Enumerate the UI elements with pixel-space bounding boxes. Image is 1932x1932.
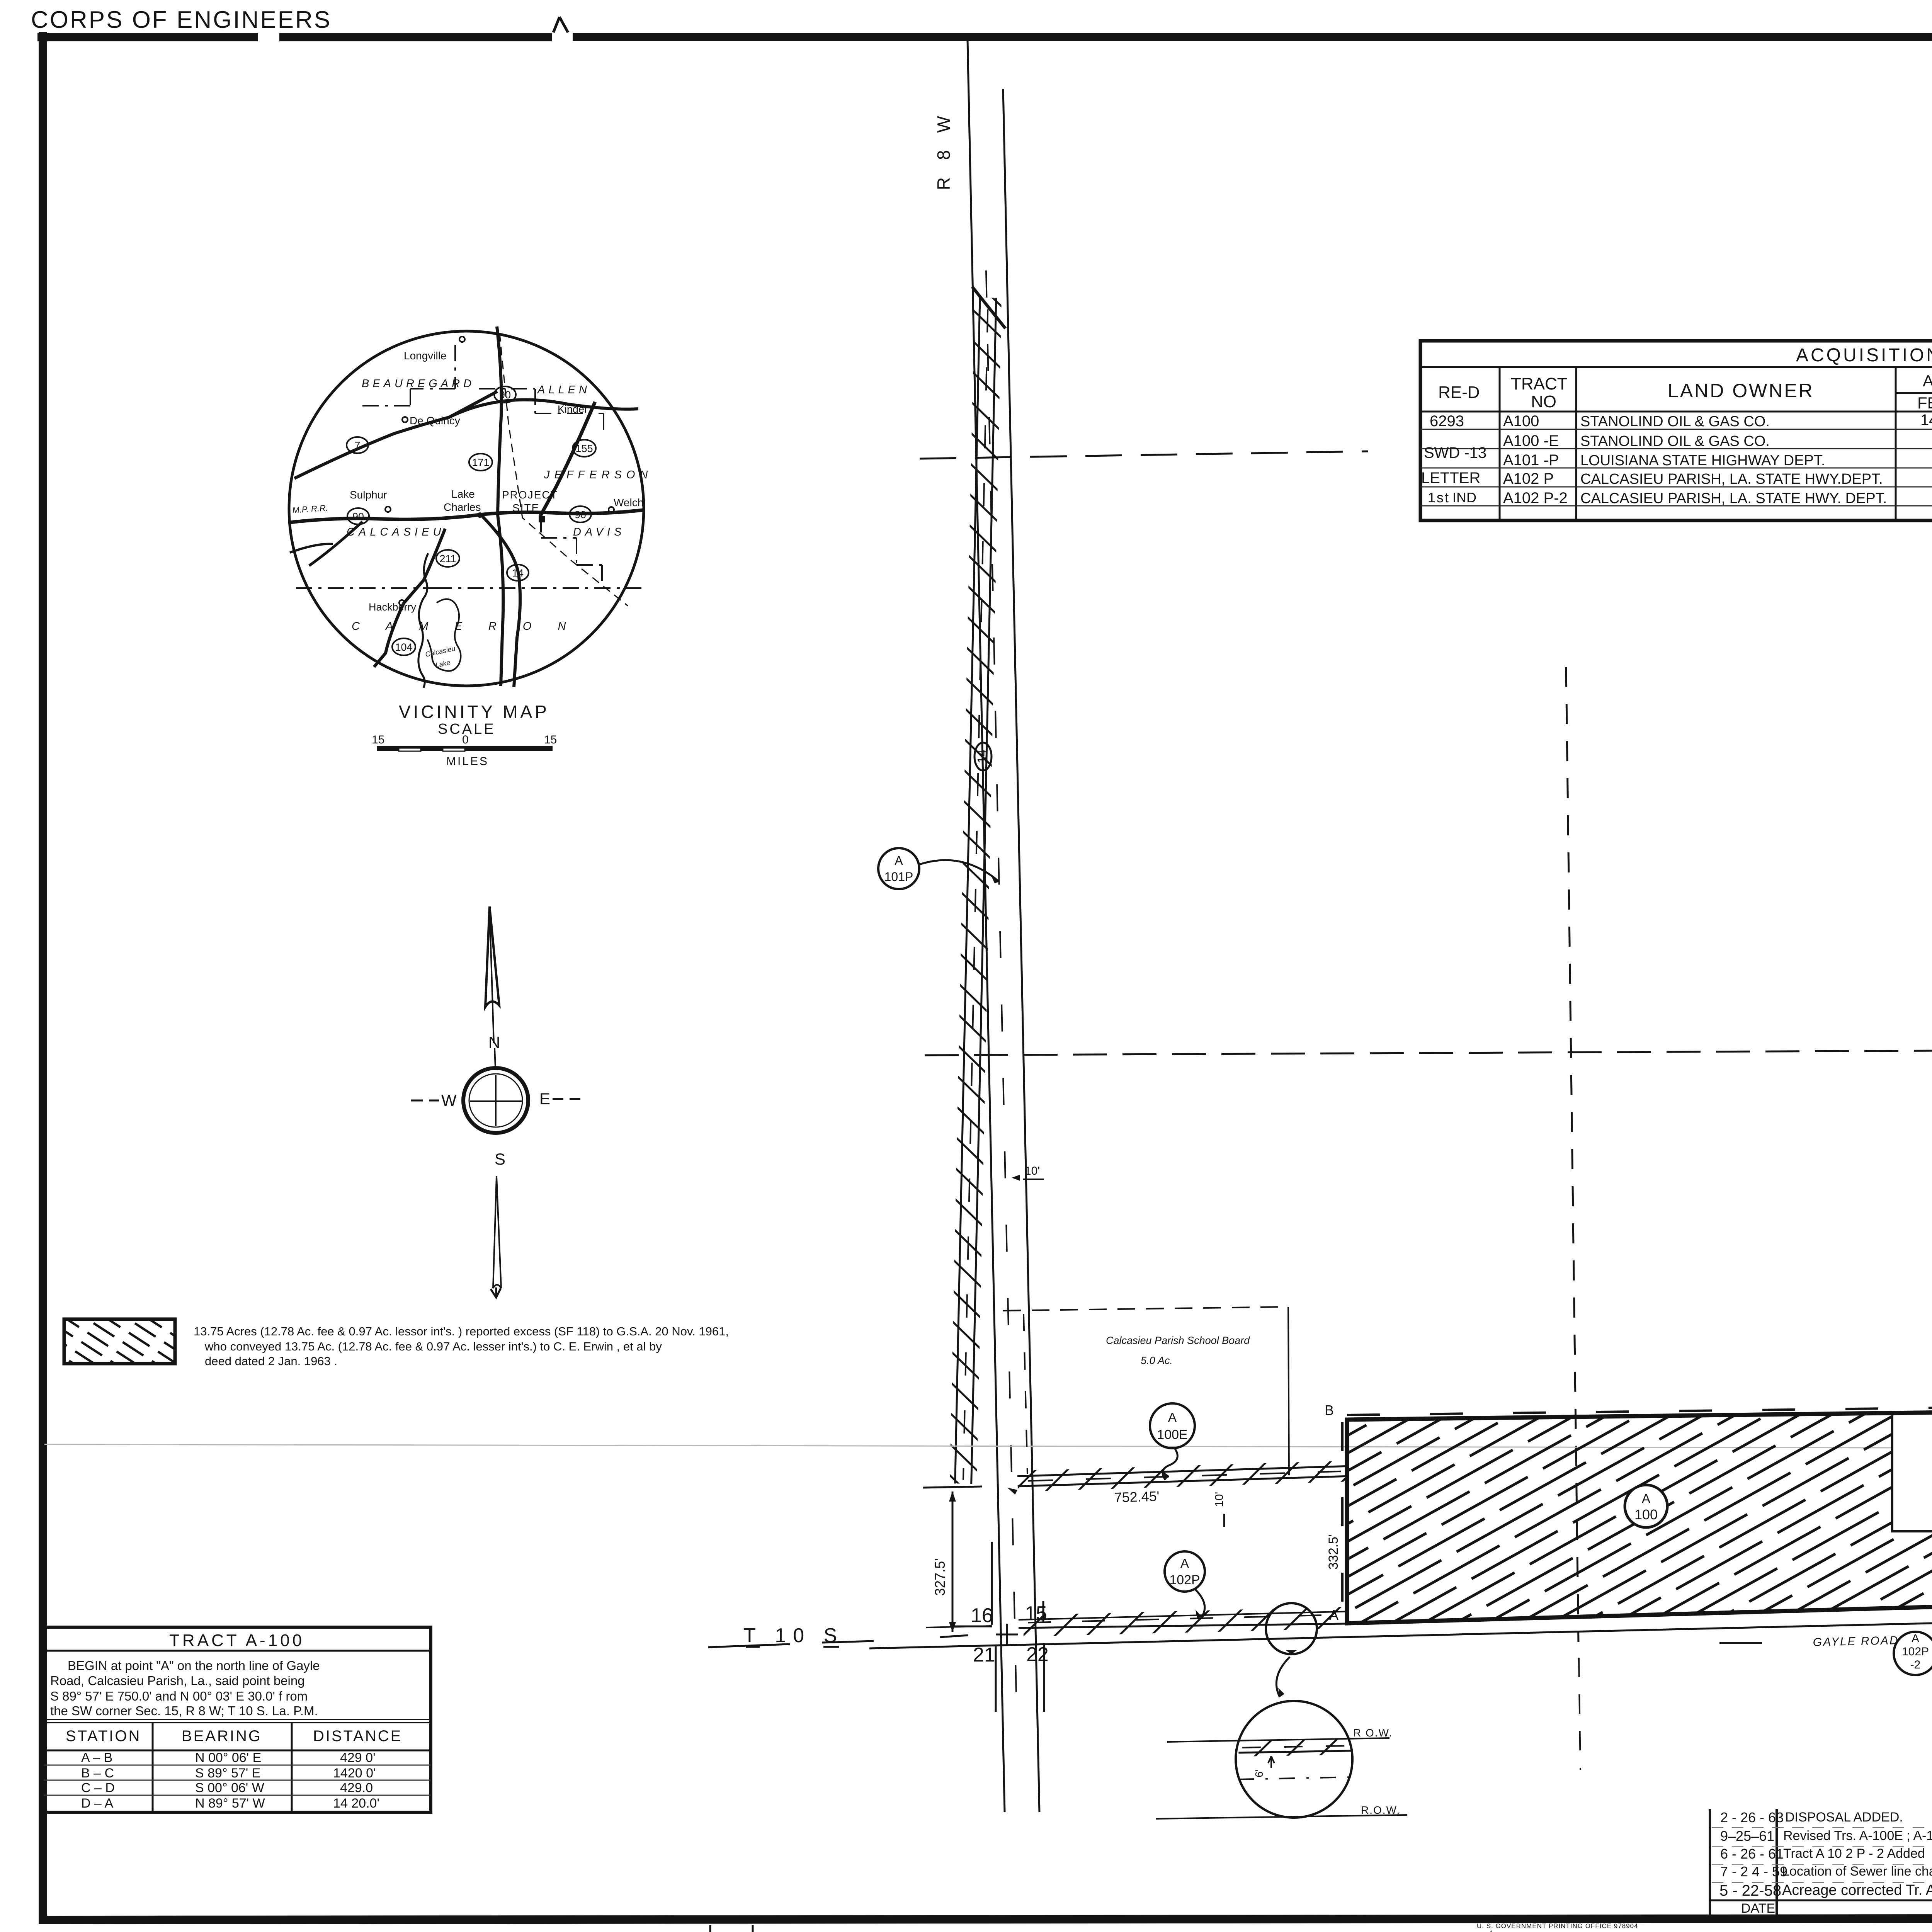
svg-text:5.0 Ac.: 5.0 Ac. (1141, 1355, 1173, 1366)
svg-text:B – C: B – C (81, 1766, 114, 1781)
svg-text:C A M E R O N: C A M E R O N (352, 620, 577, 633)
svg-text:10': 10' (1213, 1492, 1226, 1507)
svg-text:JEFFERSON: JEFFERSON (544, 469, 652, 481)
svg-text:Incl 5: Incl 5 (1430, 1930, 1483, 1932)
svg-text:STANOLIND OIL & GAS CO.: STANOLIND OIL & GAS CO. (1580, 413, 1770, 430)
svg-text:7: 7 (354, 440, 360, 451)
svg-text:6': 6' (1253, 1769, 1265, 1777)
svg-text:Revised Trs. A-100E ; A-101P: Revised Trs. A-100E ; A-101P & A-102P to… (1783, 1828, 1932, 1843)
svg-text:N: N (488, 1033, 500, 1051)
svg-text:22: 22 (1026, 1643, 1049, 1666)
svg-text:who conveyed 13.75 Ac. (12.7: who conveyed 13.75 Ac. (12.78 Ac. fee & … (204, 1340, 662, 1353)
svg-text:A: A (1329, 1607, 1338, 1623)
svg-text:VICINITY MAP: VICINITY MAP (399, 702, 549, 722)
svg-text:429.0: 429.0 (340, 1781, 373, 1795)
svg-text:S 89° 57' E 750.0' and N: S 89° 57' E 750.0' and N 00° 03' E 30.0'… (50, 1689, 308, 1703)
svg-text:2 - 26 - 63: 2 - 26 - 63 (1720, 1810, 1784, 1825)
svg-text:ACQUISITION: ACQUISITION (1796, 345, 1932, 366)
svg-text:De Quincy: De Quincy (410, 415, 460, 427)
svg-text:CALCASIEU PARISH, LA. STATE HW: CALCASIEU PARISH, LA. STATE HWY.DEPT. (1580, 471, 1883, 487)
svg-text:ACREAGE: ACREAGE (1923, 372, 1932, 390)
svg-text:CALCASIEU: CALCASIEU (347, 526, 445, 538)
svg-text:100E: 100E (1157, 1427, 1187, 1442)
svg-text:Calcasieu Parish School Board: Calcasieu Parish School Board (1106, 1335, 1250, 1346)
svg-text:B: B (1325, 1402, 1334, 1418)
svg-text:Longville: Longville (404, 350, 447, 362)
svg-text:21: 21 (973, 1644, 995, 1666)
svg-text:BEAUREGARD: BEAUREGARD (362, 378, 475, 390)
svg-text:102P: 102P (1902, 1645, 1929, 1658)
svg-text:D – A: D – A (81, 1796, 113, 1811)
svg-text:Acreage corrected Tr. A - 1: Acreage corrected Tr. A - 102 - P (1782, 1882, 1932, 1898)
svg-text:A100 -E: A100 -E (1503, 432, 1559, 449)
svg-text:SWD -13: SWD -13 (1424, 444, 1486, 461)
svg-text:Location of Sewer line cha: Location of Sewer line changed (1782, 1864, 1932, 1879)
svg-text:U. S. GOVERNMENT PRINTING: U. S. GOVERNMENT PRINTING OFFICE 978904 (1477, 1922, 1638, 1930)
svg-text:Sulphur: Sulphur (350, 489, 387, 501)
svg-text:NO: NO (1531, 392, 1556, 411)
svg-text:GAYLE ROAD: GAYLE ROAD (1813, 1634, 1899, 1649)
svg-text:Tract A 10 2 P - 2 Added: Tract A 10 2 P - 2 Added (1783, 1846, 1925, 1861)
svg-text:BEARING: BEARING (182, 1728, 262, 1745)
svg-text:S 00° 06' W: S 00° 06' W (195, 1781, 264, 1795)
svg-text:7 - 2 4 - 59: 7 - 2 4 - 59 (1720, 1864, 1787, 1879)
svg-text:A102 P: A102 P (1503, 470, 1554, 487)
svg-text:10': 10' (1025, 1165, 1040, 1177)
svg-text:LAND OWNER: LAND OWNER (1668, 380, 1814, 401)
svg-text:171: 171 (472, 457, 489, 468)
svg-text:A102 P-2: A102 P-2 (1503, 490, 1568, 507)
svg-text:9–25–61: 9–25–61 (1720, 1828, 1774, 1844)
svg-text:A101 -P: A101 -P (1503, 452, 1559, 469)
svg-text:Charles: Charles (444, 501, 481, 513)
svg-text:155: 155 (575, 443, 593, 454)
svg-text:1420 0': 1420 0' (333, 1766, 376, 1781)
svg-text:R O.W.: R O.W. (1353, 1727, 1393, 1739)
svg-text:16: 16 (971, 1604, 993, 1627)
svg-text:TRACT: TRACT (1511, 374, 1568, 393)
svg-text:T 10 S: T 10 S (743, 1624, 844, 1647)
svg-text:FEE: FEE (1917, 394, 1932, 412)
svg-text:R.O.W.: R.O.W. (1361, 1804, 1400, 1816)
svg-text:A: A (1912, 1632, 1919, 1645)
svg-text:MILES: MILES (446, 755, 489, 768)
svg-text:Hackberry: Hackberry (369, 601, 417, 613)
svg-text:5 - 22-58: 5 - 22-58 (1719, 1882, 1781, 1899)
svg-text:752.45': 752.45' (1114, 1488, 1160, 1505)
svg-text:211: 211 (439, 553, 456, 565)
svg-text:6293: 6293 (1430, 413, 1464, 430)
svg-text:CALCASIEU PARISH, LA. STATE H: CALCASIEU PARISH, LA. STATE HWY. DEPT. (1580, 490, 1887, 507)
svg-text:15: 15 (544, 733, 557, 746)
svg-text:STANOLIND OIL & GAS CO.: STANOLIND OIL & GAS CO. (1580, 433, 1770, 449)
svg-text:R 8 W: R 8 W (934, 110, 954, 190)
svg-text:A: A (895, 854, 903, 867)
svg-text:90: 90 (352, 511, 364, 522)
svg-text:Road, Calcasieu Parish, La.: Road, Calcasieu Parish, La., said point … (50, 1673, 305, 1688)
svg-text:N 00° 06' E: N 00° 06' E (195, 1750, 261, 1765)
svg-text:13.75 Acres (12.78 Ac. fee &: 13.75 Acres (12.78 Ac. fee & 0.97 Ac. le… (194, 1325, 729, 1338)
svg-text:Welch: Welch (614, 497, 643, 509)
svg-text:DAVIS: DAVIS (573, 526, 625, 538)
svg-text:100: 100 (1634, 1507, 1658, 1522)
svg-text:ALLEN: ALLEN (537, 384, 590, 396)
svg-text:Lake: Lake (451, 488, 475, 500)
svg-text:DISTANCE: DISTANCE (313, 1728, 402, 1745)
svg-text:332.5': 332.5' (1326, 1534, 1341, 1570)
svg-text:102P: 102P (1169, 1573, 1200, 1587)
svg-text:BEGIN at point "A" on the: BEGIN at point "A" on the north line of … (68, 1658, 320, 1673)
svg-text:101P: 101P (884, 870, 913, 884)
svg-text:327.5': 327.5' (932, 1558, 948, 1596)
svg-text:W: W (441, 1091, 457, 1109)
svg-text:DATE: DATE (1741, 1901, 1775, 1916)
svg-text:LETTER: LETTER (1421, 469, 1480, 486)
svg-text:SITE: SITE (512, 502, 539, 514)
svg-text:LOUISIANA STATE HIGHWAY DEPT.: LOUISIANA STATE HIGHWAY DEPT. (1580, 452, 1825, 469)
svg-text:S: S (495, 1150, 505, 1168)
svg-text:the SW corner Sec. 15, R 8 W: the SW corner Sec. 15, R 8 W; T 10 S. La… (50, 1704, 318, 1718)
svg-text:N 89° 57' W: N 89° 57' W (195, 1796, 265, 1811)
svg-text:-2: -2 (1910, 1658, 1921, 1671)
svg-text:90: 90 (575, 509, 586, 520)
svg-text:A: A (1180, 1556, 1189, 1571)
svg-text:RE-D: RE-D (1438, 383, 1480, 402)
svg-text:A: A (1168, 1410, 1177, 1425)
svg-text:429 0': 429 0' (340, 1750, 376, 1765)
svg-text:TRACT A-100: TRACT A-100 (169, 1631, 304, 1650)
svg-text:DISPOSAL ADDED.: DISPOSAL ADDED. (1785, 1810, 1903, 1825)
svg-text:Kinder: Kinder (558, 403, 588, 415)
svg-text:PROJECT: PROJECT (502, 489, 558, 501)
svg-text:A – B: A – B (81, 1750, 112, 1765)
svg-text:104: 104 (395, 641, 412, 653)
svg-text:A: A (1642, 1492, 1651, 1506)
svg-text:1 s t IND: 1 s t IND (1428, 490, 1476, 505)
svg-text:14 20.0': 14 20.0' (333, 1796, 379, 1811)
svg-text:C – D: C – D (81, 1781, 115, 1795)
svg-text:90: 90 (499, 389, 511, 401)
svg-text:STATION: STATION (66, 1728, 141, 1745)
svg-text:0: 0 (462, 733, 469, 746)
svg-text:14 .00: 14 .00 (1920, 412, 1932, 429)
svg-text:S 89° 57' E: S 89° 57' E (195, 1766, 260, 1781)
svg-text:A100: A100 (1503, 413, 1539, 430)
svg-text:CORPS OF ENGINEERS: CORPS OF ENGINEERS (31, 7, 332, 33)
svg-text:14: 14 (512, 567, 524, 579)
svg-text:deed dated 2 Jan. 1963 .: deed dated 2 Jan. 1963 . (205, 1354, 337, 1368)
svg-text:6 - 26 - 61: 6 - 26 - 61 (1720, 1846, 1784, 1862)
svg-text:E: E (539, 1090, 550, 1108)
svg-text:15: 15 (372, 733, 384, 746)
